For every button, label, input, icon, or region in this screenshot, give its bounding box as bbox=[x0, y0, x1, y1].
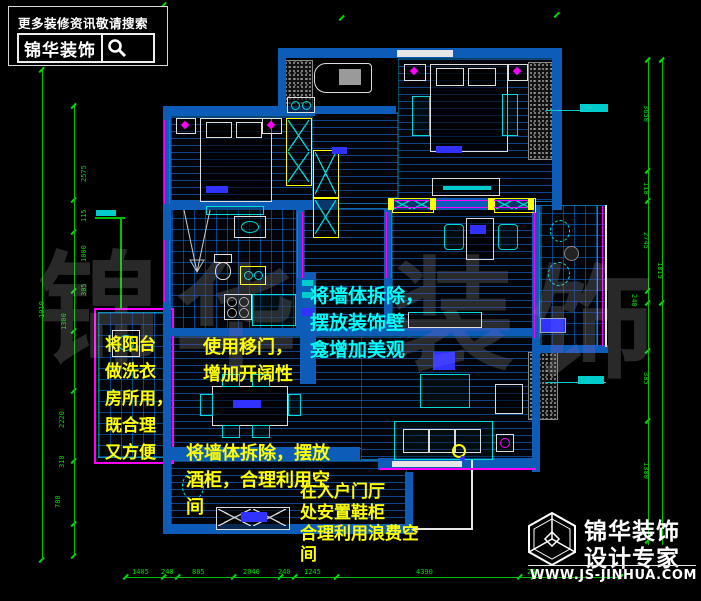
footer-divider bbox=[528, 565, 696, 566]
header-brand-name: 锦华装饰 bbox=[19, 36, 101, 61]
window-top bbox=[397, 50, 453, 57]
bed2-pillow-right bbox=[468, 68, 496, 86]
bed1-blanket bbox=[206, 186, 228, 193]
bed2-pillow-left bbox=[436, 68, 464, 86]
wardrobe-x-3 bbox=[313, 198, 339, 238]
annotation-sliding-door: 使用移门， 增加开阔性 bbox=[203, 334, 293, 388]
dining-chair-4 bbox=[252, 425, 270, 438]
bed2-blanket bbox=[436, 146, 462, 153]
wall-post-2 bbox=[430, 198, 436, 210]
header-divider bbox=[101, 35, 103, 61]
dim-bottom-3: 885 bbox=[192, 568, 205, 576]
toilet-bowl bbox=[215, 262, 231, 280]
entry-step-line-v bbox=[471, 460, 473, 530]
dim-left-1: 2575 bbox=[80, 165, 88, 182]
dim-line-left-inner bbox=[74, 106, 75, 556]
header-tagline: 更多装修资讯敬请搜索 bbox=[18, 13, 148, 32]
dim-bottom-4: 2040 bbox=[243, 568, 260, 576]
dim-bottom-5: 240 bbox=[278, 568, 291, 576]
ac-unit-box bbox=[540, 318, 566, 333]
bath2-cabinet bbox=[240, 266, 266, 285]
dim-left-4: 305 bbox=[80, 283, 88, 296]
wardrobe-x-1 bbox=[286, 118, 312, 186]
wall-balcony-bottom bbox=[540, 345, 608, 353]
dining-chair-5 bbox=[200, 394, 213, 416]
laundry-leader-v bbox=[120, 217, 122, 309]
annotation-niche: 将墙体拆除， 摆放装饰壁 龛增加美观 bbox=[310, 283, 424, 364]
window-line-living-bottom bbox=[380, 468, 536, 470]
sofa bbox=[394, 421, 493, 460]
dressing-item bbox=[332, 147, 347, 154]
double-basin bbox=[287, 97, 315, 113]
window-corridor-right bbox=[386, 212, 392, 278]
window-bath2-left bbox=[164, 240, 170, 302]
living-tv-unit bbox=[420, 374, 470, 408]
footer-website: WWW.JS-JINHUA.COM bbox=[530, 568, 697, 583]
stove bbox=[224, 294, 252, 320]
dining-centerpiece bbox=[233, 400, 261, 408]
dim-left-8: 310 bbox=[58, 455, 66, 468]
dim-bottom-6: 1245 bbox=[304, 568, 321, 576]
master-rug-right bbox=[502, 94, 518, 136]
annotation-laundry: 将阳台 做洗衣 房所用， 既合理 又方便 bbox=[105, 332, 173, 467]
window-bedroom1-left bbox=[164, 120, 170, 204]
entry-step-line-h bbox=[413, 528, 473, 530]
window-living-right bbox=[534, 212, 540, 338]
dim-bottom-2: 240 bbox=[161, 568, 174, 576]
window-sill-living bbox=[392, 461, 462, 467]
bed1-pillow-right bbox=[236, 122, 262, 138]
wall-post-1 bbox=[388, 198, 394, 210]
window-balcony-right bbox=[597, 206, 603, 346]
leader-label-2 bbox=[578, 376, 604, 384]
dim-bottom-1: 1405 bbox=[132, 568, 149, 576]
dim-left-9: 780 bbox=[54, 495, 62, 508]
header-brand-block: 更多装修资讯敬请搜索 锦华装饰 bbox=[8, 6, 168, 66]
cad-floorplan-canvas: 1405 240 885 2040 240 1245 4390 240 2575… bbox=[0, 0, 701, 601]
window-master-bottom bbox=[392, 200, 532, 208]
living-tv bbox=[433, 352, 455, 370]
laundry-leader-h bbox=[95, 217, 125, 219]
dim-line-left-outer bbox=[42, 70, 43, 560]
footer-brand-block: 锦华装饰 设计专家 WWW.JS-JINHUA.COM bbox=[524, 510, 698, 594]
dim-right-5: 240 bbox=[630, 294, 638, 307]
balcony-outer-line bbox=[605, 205, 607, 347]
dim-left-7: 2220 bbox=[58, 411, 66, 428]
wall-bath1-left bbox=[278, 48, 286, 112]
dim-left-5: 1300 bbox=[60, 313, 68, 330]
wardrobe-x-2 bbox=[313, 150, 339, 198]
study-desk-item bbox=[470, 225, 486, 234]
wall-post-4 bbox=[528, 198, 534, 210]
dim-line-right-inner bbox=[648, 60, 649, 545]
dining-chair-6 bbox=[288, 394, 301, 416]
wall-right-upper bbox=[552, 48, 562, 210]
bath2-door-swing bbox=[180, 208, 216, 278]
study-chair-left bbox=[444, 224, 464, 250]
dim-line-right-outer bbox=[662, 60, 663, 545]
master-tv bbox=[443, 186, 491, 190]
study-chair-right bbox=[498, 224, 518, 250]
balcony-table bbox=[564, 246, 579, 261]
balcony-plant-1 bbox=[550, 220, 570, 242]
cube-hexagon-logo-icon bbox=[524, 510, 580, 568]
dining-chair-3 bbox=[222, 425, 240, 438]
laundry-leader-tag bbox=[96, 210, 116, 216]
bed1-pillow-left bbox=[206, 122, 232, 138]
dim-left-3: 1000 bbox=[80, 245, 88, 262]
wall-hatch-master-right bbox=[528, 62, 554, 160]
window-corridor-left bbox=[297, 212, 303, 278]
basin-counter bbox=[234, 216, 266, 238]
bathtub bbox=[314, 63, 372, 93]
annotation-shoe-cabinet: 在入户门厅 处安置鞋柜 合理利用浪费空 间 bbox=[300, 482, 419, 566]
wall-post-3 bbox=[488, 198, 494, 210]
magnifier-icon bbox=[105, 37, 129, 59]
side-table bbox=[496, 434, 514, 452]
kitchen-counter bbox=[252, 294, 296, 326]
hall-cabinet bbox=[495, 384, 523, 414]
balcony-plant-2 bbox=[548, 262, 570, 286]
master-rug-left bbox=[412, 96, 430, 136]
header-search-box: 锦华装饰 bbox=[17, 33, 155, 63]
dim-bottom-7: 4390 bbox=[416, 568, 433, 576]
leader-label-1 bbox=[580, 104, 608, 112]
dim-left-2: 115 bbox=[80, 209, 88, 222]
